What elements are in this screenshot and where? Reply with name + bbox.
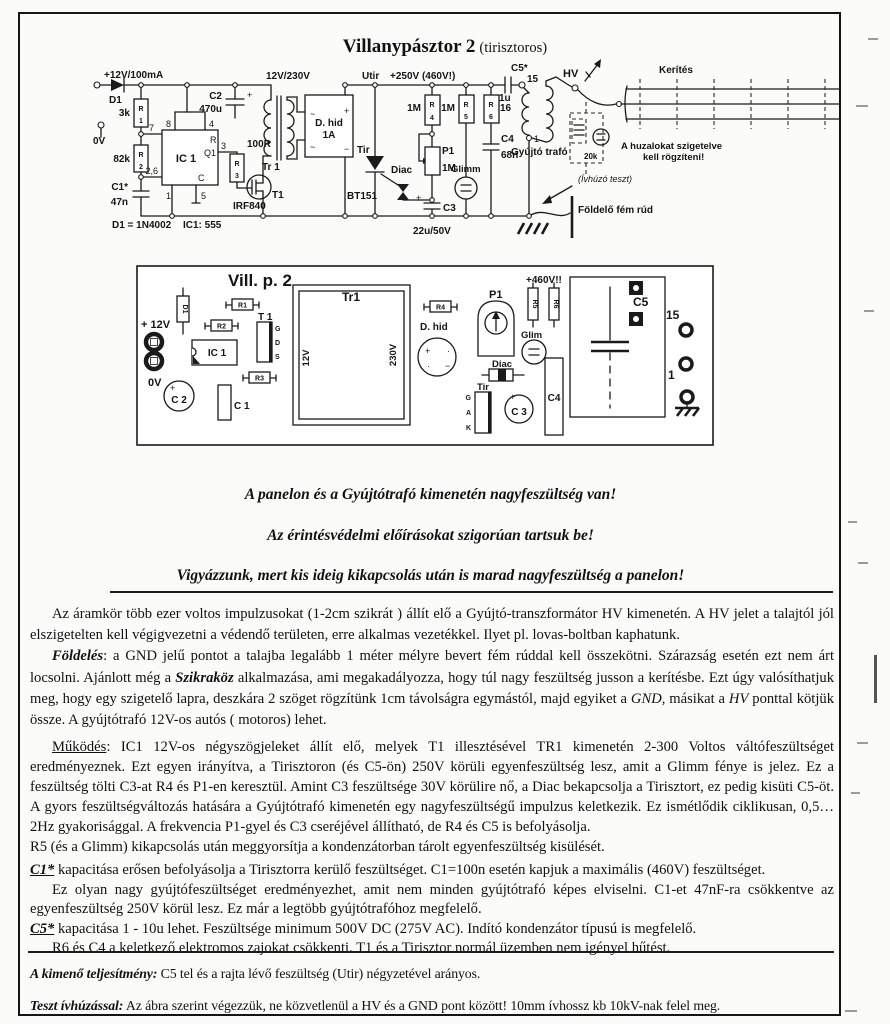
glimm-label: Glimm (451, 164, 481, 175)
pcb-tr1: Tr1 12V 230V (293, 285, 410, 425)
pcb-c3-plus: + (510, 392, 515, 402)
ic1-type-label: IC1: 555 (183, 220, 222, 231)
pcb-bridge-dot1: · (447, 346, 450, 356)
pcb-r2-label: R2 (217, 324, 226, 331)
pcb-glim-label: Glim (521, 330, 542, 341)
paragraph-intro: Az áramkör több ezer voltos impulzusokat… (30, 604, 834, 731)
bridge-ac2: ~ (310, 142, 315, 152)
pin3-label: 3 (221, 141, 226, 151)
paragraph-operation-r5: R5 (és a Glimm) kikapcsolás után meggyor… (30, 837, 834, 857)
pcb-r5-label: R5 (531, 300, 538, 309)
transformer-ratio: 12V/230V (266, 71, 310, 82)
supply-label: +12V/100mA (104, 70, 163, 81)
pcb-tir-a: A (466, 410, 471, 417)
gate-driver: R 3 100R T1 IRF840 (230, 139, 284, 216)
r4-value: 1M (407, 103, 421, 114)
c2-label: C2 (209, 91, 222, 102)
ic1-pin-q: Q1 (204, 148, 216, 158)
pcb-t1-drain: D (275, 340, 280, 347)
ground-rod-label: Földelő fém rúd (578, 205, 653, 216)
section-divider-bottom (28, 951, 834, 953)
bridge-label: D. hid (315, 118, 343, 129)
c5-label: C5* (511, 63, 528, 74)
bridge-current: 1A (323, 130, 336, 141)
c3-plus: + (416, 193, 421, 203)
d1-label: D1 (109, 95, 122, 106)
pin8-label: 8 (166, 119, 171, 129)
paragraph-intro-1: Az áramkör több ezer voltos impulzusokat… (30, 604, 834, 646)
scan-artifact (845, 1010, 857, 1012)
grounding: Földelő fém rúd (141, 196, 653, 238)
r5-letter: R (463, 102, 468, 109)
scan-artifact (857, 742, 868, 744)
bridge-ac1: ~ (310, 109, 315, 119)
section-divider-top (110, 591, 833, 593)
hv-label: HV (563, 68, 579, 80)
scan-artifact (851, 792, 860, 794)
paragraph-r6c4: R6 és C4 a keletkező elektromos zajokat … (30, 939, 834, 959)
warning-line-2: Az érintésvédelmi előírásokat szigorúan … (18, 527, 843, 545)
c1-label: C1* (111, 182, 128, 193)
pin5-label: 5 (201, 191, 206, 201)
pcb-c2-plus: + (170, 383, 175, 393)
pcb-c2-label: C 2 (171, 395, 187, 406)
circuit-schematic: +12V/100mA D1 0V R 1 3k 7 R 2 82k 2,6 C1… (0, 52, 890, 248)
r6-value: 16 (500, 103, 512, 114)
pcb-dhid-label: D. hid (420, 322, 448, 333)
scan-artifact (864, 310, 874, 312)
arc-test-label: (Ívhúzó teszt) (578, 174, 632, 184)
pcb-tir-k: K (466, 425, 471, 432)
pcb-p1-label: P1 (489, 289, 502, 301)
paragraph-c1-note: Ez olyan nagy gyújtófeszültséget eredmén… (30, 881, 834, 920)
r4-number: 4 (430, 115, 434, 122)
pcb-c3-label: C 3 (511, 407, 527, 418)
pcb-pad15-label: 15 (666, 308, 680, 322)
r1-number: 1 (139, 118, 143, 125)
p1-label: P1 (442, 146, 455, 157)
fence: Kerítés A huzalokat szigetelve kell rögz… (578, 65, 840, 163)
paragraph-c1: C1* kapacitása erősen befolyásolja a Tir… (30, 861, 834, 881)
scan-artifact (868, 38, 878, 40)
pcb-d1-label: D1 (181, 305, 188, 314)
c5-value: 1u (499, 93, 511, 104)
transformer-tr1: 12V/230V Tr 1 (262, 71, 310, 173)
ic1-label: IC 1 (176, 153, 196, 165)
pcb-t1-gate: G (275, 326, 281, 333)
r5-number: 5 (464, 114, 468, 121)
pcb-r6-label: R6 (552, 300, 559, 309)
r1-letter: R (138, 106, 143, 113)
tir-label: Tir (357, 145, 370, 156)
zero-volt-label: 0V (93, 136, 106, 147)
pcb-12v-label: + 12V (141, 319, 171, 331)
pcb-title: Vill. p. 2 (228, 271, 292, 290)
bridge-plus: + (344, 106, 349, 116)
ic1-pin-c: C (198, 173, 205, 183)
pcb-tr1-12v: 12V (301, 349, 312, 367)
pcb-c5-label: C5 (633, 295, 649, 309)
r2-value: 82k (113, 154, 130, 165)
pcb-pad1-label: 1 (668, 368, 675, 382)
pcb-0v-label: 0V (148, 377, 162, 389)
r2-number: 2 (139, 164, 143, 171)
pcb-r4-label: R4 (436, 305, 445, 312)
pcb-t1-source: S (275, 354, 280, 361)
warning-line-3: Vigyázzunk, mert kis ideig kikapcsolás u… (18, 567, 843, 585)
pin26-label: 2,6 (145, 166, 158, 176)
pcb-layout: Vill. p. 2 D1 + 12V 0V C 2 + IC 1 C 1 R1… (130, 258, 720, 450)
hv-rail: Utir +250V (460V!) (345, 71, 505, 85)
r1-value: 3k (119, 108, 131, 119)
scan-artifact (858, 562, 868, 564)
r6-letter: R (488, 102, 493, 109)
paragraph-operation-main: Működés: IC1 12V-os négyszögjeleket állí… (30, 737, 834, 837)
t1-label: T1 (272, 190, 284, 201)
t1-type-label: IRF840 (233, 201, 266, 212)
pcb-tr1-label: Tr1 (342, 290, 360, 304)
c1-value: 47n (111, 197, 128, 208)
r3-letter: R (234, 161, 239, 168)
scan-artifact (874, 655, 877, 703)
diac-label: Diac (391, 165, 413, 176)
pcb-r3-label: R3 (255, 376, 264, 383)
paragraph-c5: C5* kapacitása 1 - 10u lehet. Feszültség… (30, 920, 834, 940)
arc-test-line: Teszt ívhúzással: Az ábra szerint végezz… (30, 998, 836, 1014)
pcb-ic1-label: IC 1 (208, 348, 227, 359)
c4-label: C4 (501, 134, 514, 145)
warning-line-1: A panelon és a Gyújtótrafó kimenetén nag… (18, 486, 843, 504)
pcb-tir-g: G (466, 395, 472, 402)
c3-label: C3 (443, 203, 456, 214)
spark-gap-value: 20k (584, 152, 598, 161)
insulate-note-2: kell rögzíteni! (643, 152, 704, 163)
tir-type-label: BT151 (347, 191, 377, 202)
scan-artifact (856, 105, 868, 107)
pcb-tr1-230v: 230V (388, 343, 399, 366)
output-coil: C5* 1u 15 1 HV Gyújtó trafó (499, 59, 601, 216)
bridge-minus: − (344, 144, 349, 154)
pcb-c1-label: C 1 (234, 401, 250, 412)
paragraph-capacitors: C1* kapacitása erősen befolyásolja a Tir… (30, 861, 834, 959)
tr1-label: Tr 1 (262, 162, 280, 173)
c3-value: 22u/50V (413, 226, 451, 237)
d1-type-label: D1 = 1N4002 (112, 220, 172, 231)
r2-letter: R (138, 152, 143, 159)
r6-number: 6 (489, 114, 493, 121)
pcb-bridge-dot2: · (427, 361, 430, 371)
pin1-label: 1 (166, 191, 171, 201)
scanned-document-page: { "doc": { "title_main": "Villanypásztor… (0, 0, 890, 1024)
insulate-note-1: A huzalokat szigetelve (621, 141, 722, 152)
scan-artifact (848, 521, 857, 523)
pcb-bridge-minus: − (445, 361, 450, 371)
terminal15-label: 15 (527, 74, 539, 85)
r3-number: 3 (235, 173, 239, 180)
ignition-coil-label: Gyújtó trafó (511, 147, 568, 158)
c2-plus: + (247, 90, 252, 100)
ic1-pin-r: R (210, 135, 217, 145)
r5-value: 1M (441, 103, 455, 114)
pcb-bridge-plus: + (425, 346, 430, 356)
pin4-label: 4 (209, 119, 214, 129)
r4-letter: R (429, 102, 434, 109)
paragraph-operation: Működés: IC1 12V-os négyszögjeleket állí… (30, 737, 834, 857)
c2-capacitor: + C2 470u (199, 85, 252, 118)
bridge-rectifier: D. hid 1A ~ + ~ − (305, 85, 353, 216)
pcb-460v-label: +460V!! (526, 275, 562, 286)
utir-label: Utir (362, 71, 379, 82)
output-power-line: A kimenő teljesítmény: C5 tel és a rajta… (30, 966, 836, 982)
fence-label: Kerítés (659, 65, 693, 76)
pin7-label: 7 (149, 123, 154, 133)
paragraph-grounding: Földelés: a GND jelű pontot a talajba le… (30, 646, 834, 731)
pcb-r1-label: R1 (238, 303, 247, 310)
rail-voltage: +250V (460V!) (390, 71, 455, 82)
pcb-c4-label: C4 (548, 393, 561, 404)
c2-value: 470u (199, 104, 222, 115)
